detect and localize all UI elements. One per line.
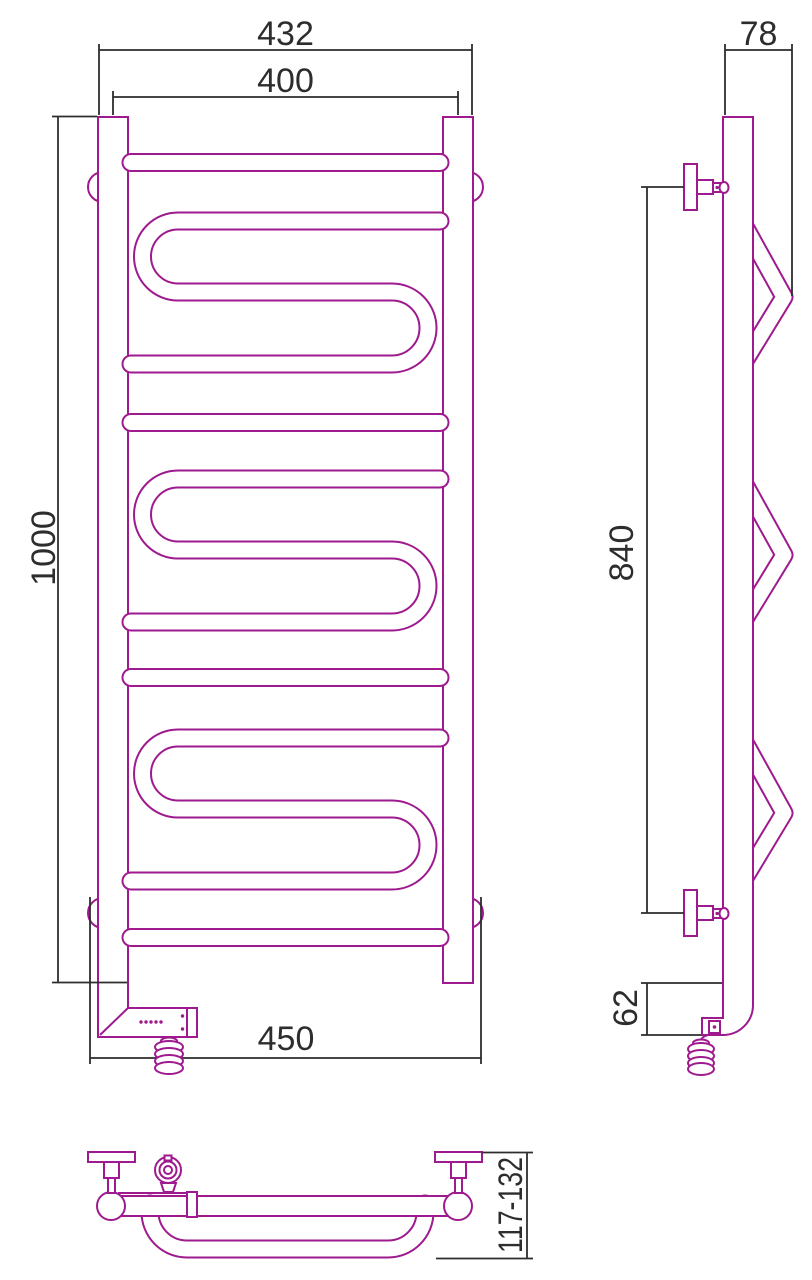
bracket-knob (720, 908, 729, 919)
dim-label-bracket-spacing: 840 (603, 525, 641, 582)
technical-drawing-towel-rail: 432 400 1000 450 78 840 6 (0, 0, 812, 1280)
dim-label-lower-section: 62 (607, 989, 645, 1027)
dimension-bracket-spacing: 840 (603, 187, 684, 913)
bracket-stem (697, 180, 713, 194)
serpentine-coil-2 (131, 479, 440, 622)
dimension-center-width: 400 (113, 62, 458, 115)
power-cord-front (155, 1037, 183, 1074)
front-view (88, 117, 483, 1037)
bracket-knob (720, 182, 729, 193)
dim-label-overall-width: 432 (257, 15, 314, 53)
dim-label-depth: 78 (740, 15, 778, 53)
bracket-flange (684, 164, 697, 210)
side-view (684, 117, 784, 1035)
wall-bracket-lower (684, 890, 729, 936)
dim-label-wall-distance: 117-132 (492, 1157, 530, 1253)
dim-label-height: 1000 (25, 510, 63, 586)
bracket-flange (684, 890, 697, 936)
bracket-stem (697, 906, 713, 920)
bottom-bracket-left (88, 1152, 135, 1193)
dim-label-lower-width: 450 (258, 1020, 315, 1058)
dim-label-center-width: 400 (257, 62, 314, 100)
housing-end-cap (187, 1192, 197, 1217)
wall-bracket-upper (684, 164, 729, 210)
post-section-right (444, 1192, 472, 1220)
power-cord-side (688, 1034, 714, 1075)
serpentine-coil-3 (131, 738, 440, 881)
drawing-svg: 432 400 1000 450 78 840 6 (0, 0, 812, 1280)
serpentine-coil-1 (131, 221, 440, 364)
bottom-cable-entry (155, 1156, 181, 1193)
right-post (443, 117, 473, 983)
side-post (702, 117, 753, 1035)
dimension-lower-width: 450 (90, 897, 481, 1064)
post-section-left (97, 1192, 125, 1220)
bottom-view (88, 1152, 482, 1249)
bottom-bracket-right (435, 1152, 482, 1193)
